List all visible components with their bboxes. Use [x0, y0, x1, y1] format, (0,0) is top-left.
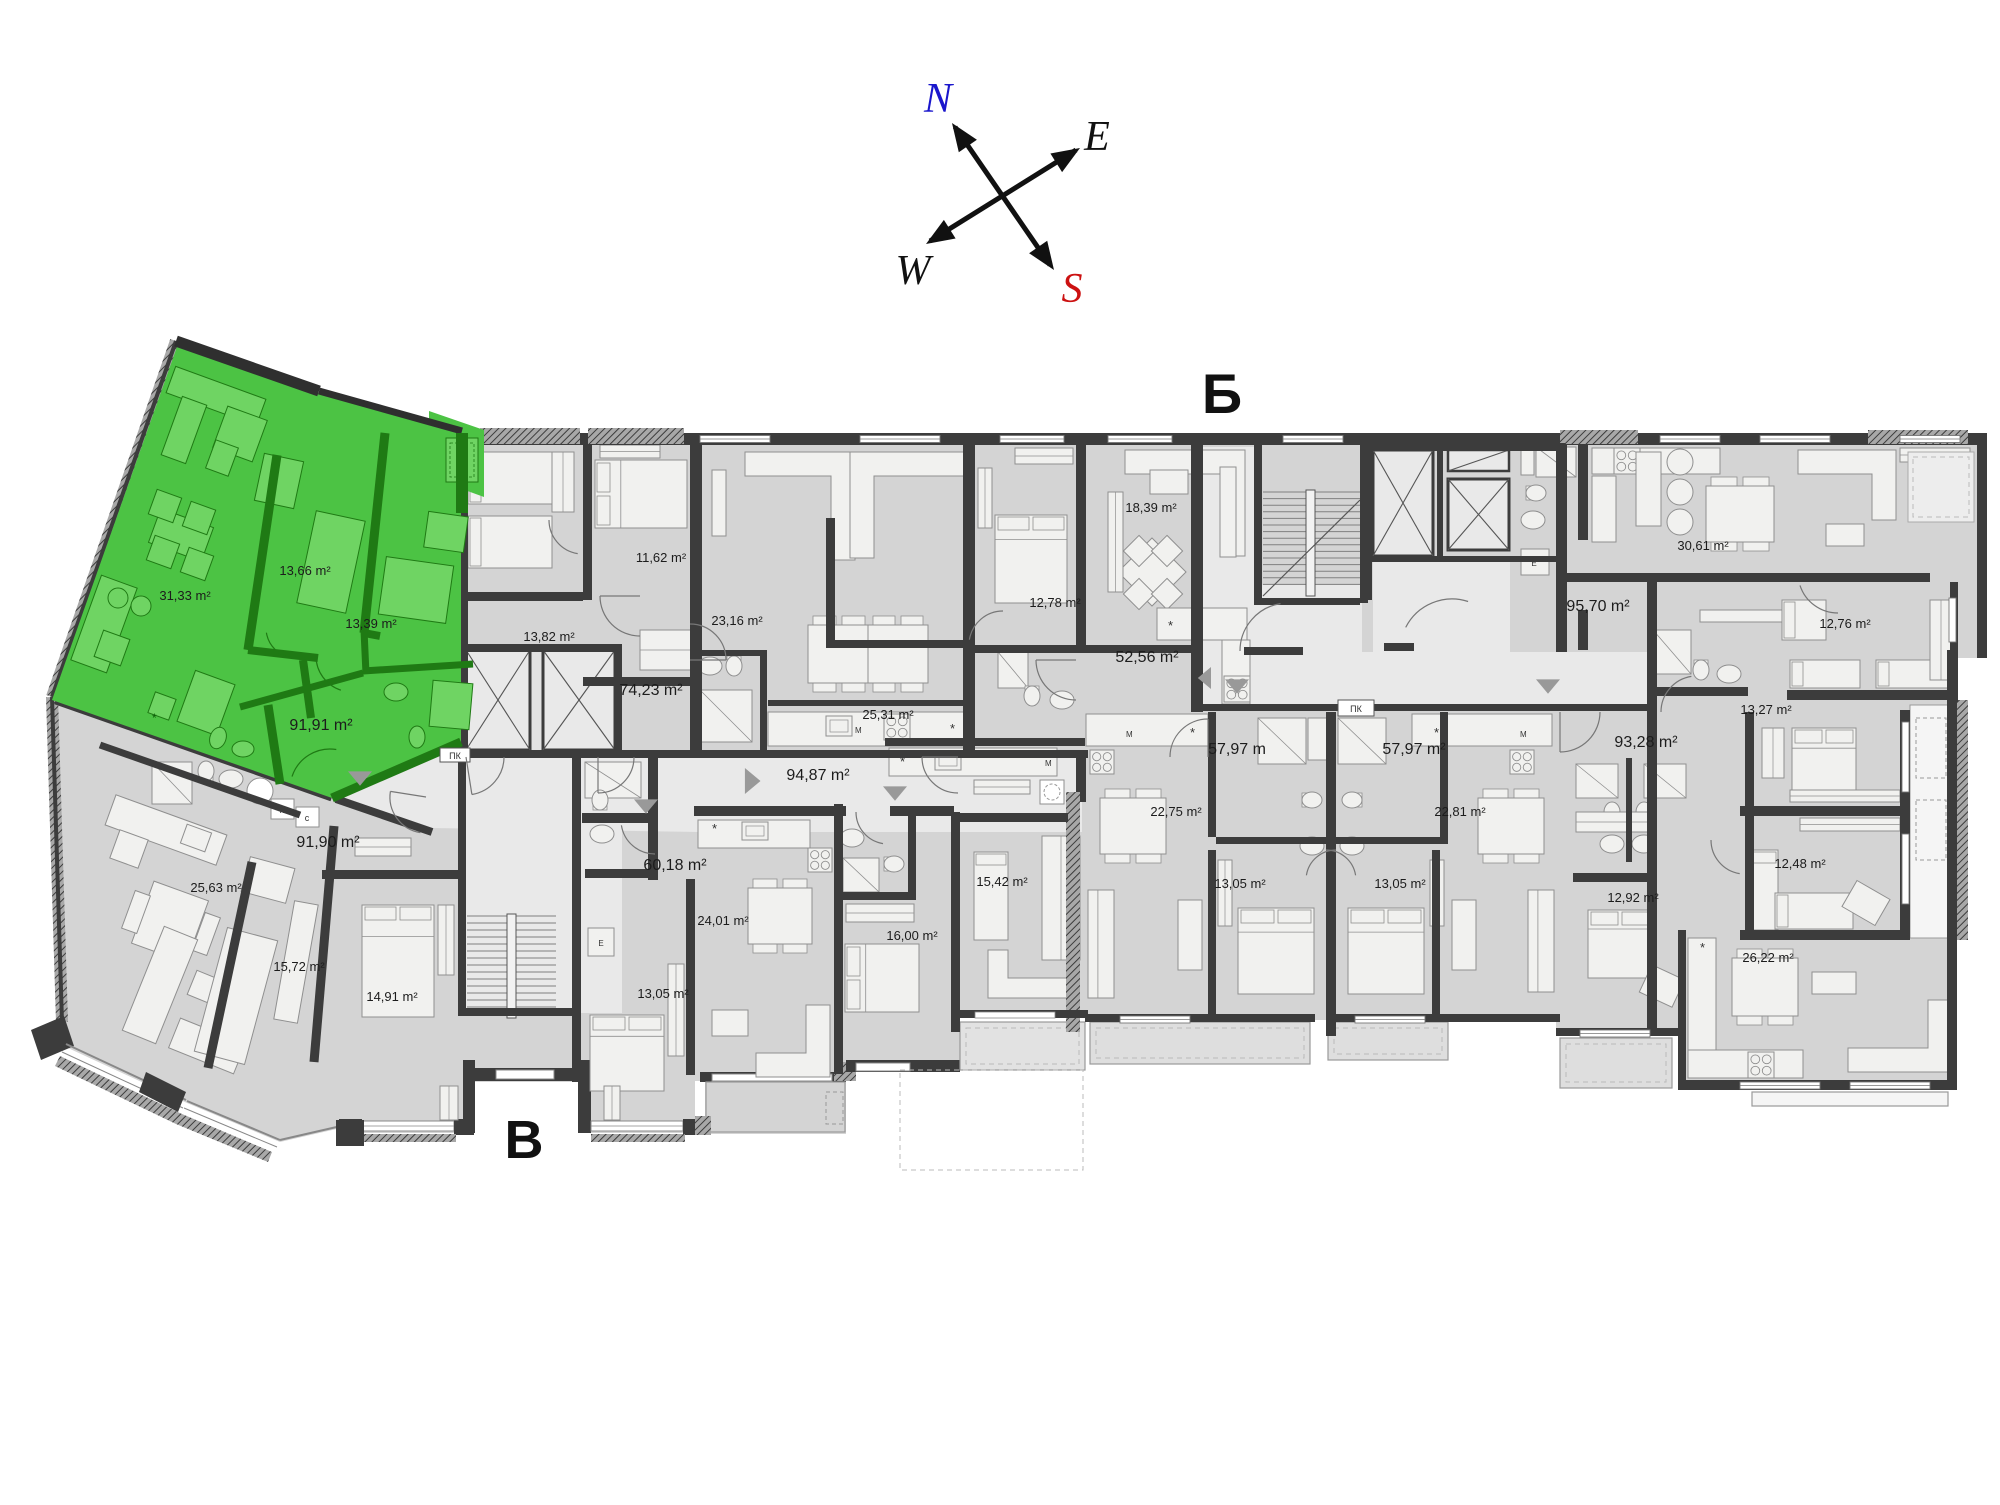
- svg-text:60,18 m²: 60,18 m²: [643, 857, 707, 874]
- svg-text:31,33 m²: 31,33 m²: [159, 588, 211, 603]
- svg-text:57,97 m: 57,97 m: [1208, 741, 1266, 758]
- svg-text:30,61 m²: 30,61 m²: [1677, 538, 1729, 553]
- svg-text:*: *: [1168, 618, 1173, 633]
- svg-text:25,63 m²: 25,63 m²: [190, 880, 242, 895]
- svg-text:14,91 m²: 14,91 m²: [366, 989, 418, 1004]
- svg-text:91,91 m²: 91,91 m²: [289, 717, 353, 734]
- svg-text:22,81 m²: 22,81 m²: [1434, 804, 1486, 819]
- svg-text:12,92 m²: 12,92 m²: [1607, 890, 1659, 905]
- svg-text:94,87 m²: 94,87 m²: [786, 767, 850, 784]
- svg-text:ПК: ПК: [1350, 704, 1362, 714]
- svg-text:*: *: [1190, 725, 1195, 740]
- svg-text:Б: Б: [1202, 362, 1242, 425]
- svg-text:15,72 m²: 15,72 m²: [273, 959, 325, 974]
- svg-text:13,05 m²: 13,05 m²: [1374, 876, 1426, 891]
- svg-text:57,97 m²: 57,97 m²: [1382, 741, 1446, 758]
- svg-text:E: E: [1083, 114, 1110, 160]
- svg-text:*: *: [1700, 940, 1705, 955]
- svg-text:ПК: ПК: [449, 751, 461, 761]
- svg-text:22,75 m²: 22,75 m²: [1150, 804, 1202, 819]
- svg-text:*: *: [950, 721, 955, 736]
- svg-text:13,05 m²: 13,05 m²: [637, 986, 689, 1001]
- svg-text:13,27 m²: 13,27 m²: [1740, 702, 1792, 717]
- svg-text:В: В: [505, 1110, 544, 1170]
- svg-text:*: *: [712, 821, 717, 836]
- svg-text:15,42 m²: 15,42 m²: [976, 874, 1028, 889]
- svg-text:S: S: [1062, 266, 1083, 312]
- svg-text:с: с: [305, 813, 310, 823]
- svg-text:Е: Е: [598, 939, 603, 948]
- svg-text:13,39 m²: 13,39 m²: [345, 616, 397, 631]
- svg-text:12,48 m²: 12,48 m²: [1774, 856, 1826, 871]
- svg-text:24,01 m²: 24,01 m²: [697, 913, 749, 928]
- svg-text:*: *: [1434, 725, 1439, 740]
- svg-text:26,22 m²: 26,22 m²: [1742, 950, 1794, 965]
- svg-text:23,16 m²: 23,16 m²: [711, 613, 763, 628]
- svg-text:11,62 m²: 11,62 m²: [636, 550, 687, 565]
- svg-text:М: М: [1520, 730, 1527, 739]
- svg-text:М: М: [1045, 759, 1052, 768]
- svg-text:13,05 m²: 13,05 m²: [1214, 876, 1266, 891]
- svg-text:13,82 m²: 13,82 m²: [523, 629, 575, 644]
- svg-text:13,66 m²: 13,66 m²: [279, 563, 331, 578]
- svg-text:52,56 m²: 52,56 m²: [1115, 649, 1179, 666]
- svg-text:93,28 m²: 93,28 m²: [1614, 734, 1678, 751]
- svg-text:*: *: [152, 711, 157, 725]
- svg-text:91,90 m²: 91,90 m²: [296, 834, 360, 851]
- svg-text:N: N: [923, 76, 954, 122]
- svg-text:74,23 m²: 74,23 m²: [619, 682, 683, 699]
- svg-text:12,76 m²: 12,76 m²: [1819, 616, 1871, 631]
- svg-text:25,31 m²: 25,31 m²: [862, 707, 914, 722]
- svg-text:М: М: [855, 726, 862, 735]
- svg-text:95,70 m²: 95,70 m²: [1566, 598, 1630, 615]
- svg-text:М: М: [1126, 730, 1133, 739]
- svg-text:16,00 m²: 16,00 m²: [886, 928, 938, 943]
- svg-text:12,78 m²: 12,78 m²: [1029, 595, 1081, 610]
- svg-text:18,39 m²: 18,39 m²: [1125, 500, 1177, 515]
- svg-text:W: W: [896, 248, 935, 294]
